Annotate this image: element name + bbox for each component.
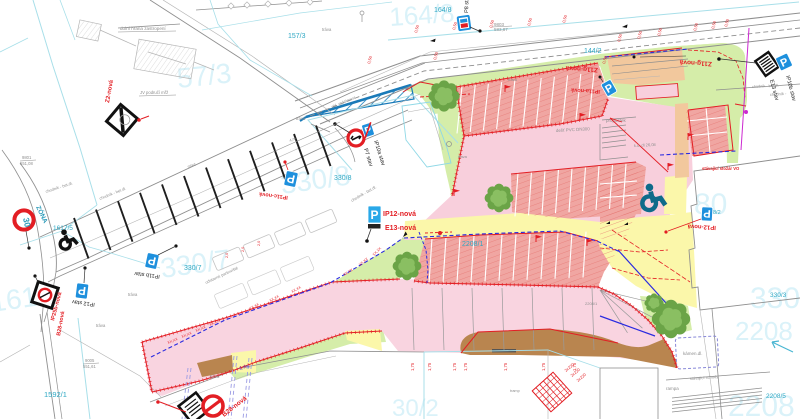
svg-text:9801: 9801 (22, 155, 32, 160)
svg-text:583,87: 583,87 (494, 27, 508, 32)
svg-text:tráva: tráva (458, 154, 468, 159)
svg-text:2208: 2208 (735, 316, 793, 346)
svg-text:tráva: tráva (508, 77, 518, 82)
svg-text:157/3: 157/3 (288, 33, 306, 40)
svg-text:P8 stav: P8 stav (464, 0, 471, 13)
svg-text:9005: 9005 (85, 358, 95, 363)
svg-text:551,08: 551,08 (20, 161, 33, 166)
svg-text:2,0: 2,0 (241, 247, 245, 252)
svg-text:tramp: tramp (510, 389, 520, 393)
svg-text:1,75: 1,75 (410, 362, 415, 371)
svg-text:1,75: 1,75 (463, 362, 468, 371)
svg-text:propustek: propustek (606, 118, 627, 123)
svg-text:tráva: tráva (96, 323, 106, 328)
svg-text:164/8: 164/8 (388, 0, 455, 32)
svg-text:330/8: 330/8 (334, 175, 352, 182)
svg-text:kámen.dl.: kámen.dl. (683, 351, 703, 356)
svg-text:1,75: 1,75 (503, 362, 508, 371)
svg-text:P: P (370, 208, 378, 222)
svg-text:stávající stožár VO: stávající stožár VO (702, 166, 740, 171)
svg-text:330/3: 330/3 (770, 292, 787, 299)
svg-text:1592/1: 1592/1 (44, 390, 67, 399)
svg-text:rampa: rampa (666, 386, 679, 391)
svg-text:1,75: 1,75 (452, 362, 457, 371)
svg-text:tráva: tráva (296, 116, 306, 121)
svg-text:551,61: 551,61 (83, 364, 96, 369)
svg-text:2208/1: 2208/1 (462, 241, 484, 248)
svg-text:IP12-nová: IP12-nová (383, 211, 416, 218)
svg-text:1,75: 1,75 (541, 362, 546, 371)
svg-text:tráva: tráva (322, 27, 332, 32)
svg-text:2208/1: 2208/1 (585, 301, 598, 306)
svg-text:1,75: 1,75 (427, 362, 432, 371)
svg-text:144/2: 144/2 (584, 48, 602, 55)
svg-text:P: P (703, 207, 711, 219)
svg-text:30/2: 30/2 (392, 395, 439, 419)
svg-text:E13-nová: E13-nová (385, 225, 416, 232)
svg-text:dolní hrana zastropení: dolní hrana zastropení (120, 26, 166, 31)
svg-text:8/2: 8/2 (713, 210, 721, 216)
svg-text:2208/5: 2208/5 (766, 393, 786, 400)
svg-text:JV područí mřž: JV područí mřž (140, 90, 168, 95)
svg-text:tráva: tráva (210, 374, 220, 379)
svg-text:164/8: 164/8 (434, 7, 452, 14)
svg-text:tráva: tráva (128, 292, 138, 297)
svg-text:2,0: 2,0 (225, 253, 229, 258)
svg-text:1,75: 1,75 (572, 362, 577, 371)
svg-text:330/7: 330/7 (184, 265, 202, 272)
svg-text:2,0: 2,0 (257, 241, 261, 246)
